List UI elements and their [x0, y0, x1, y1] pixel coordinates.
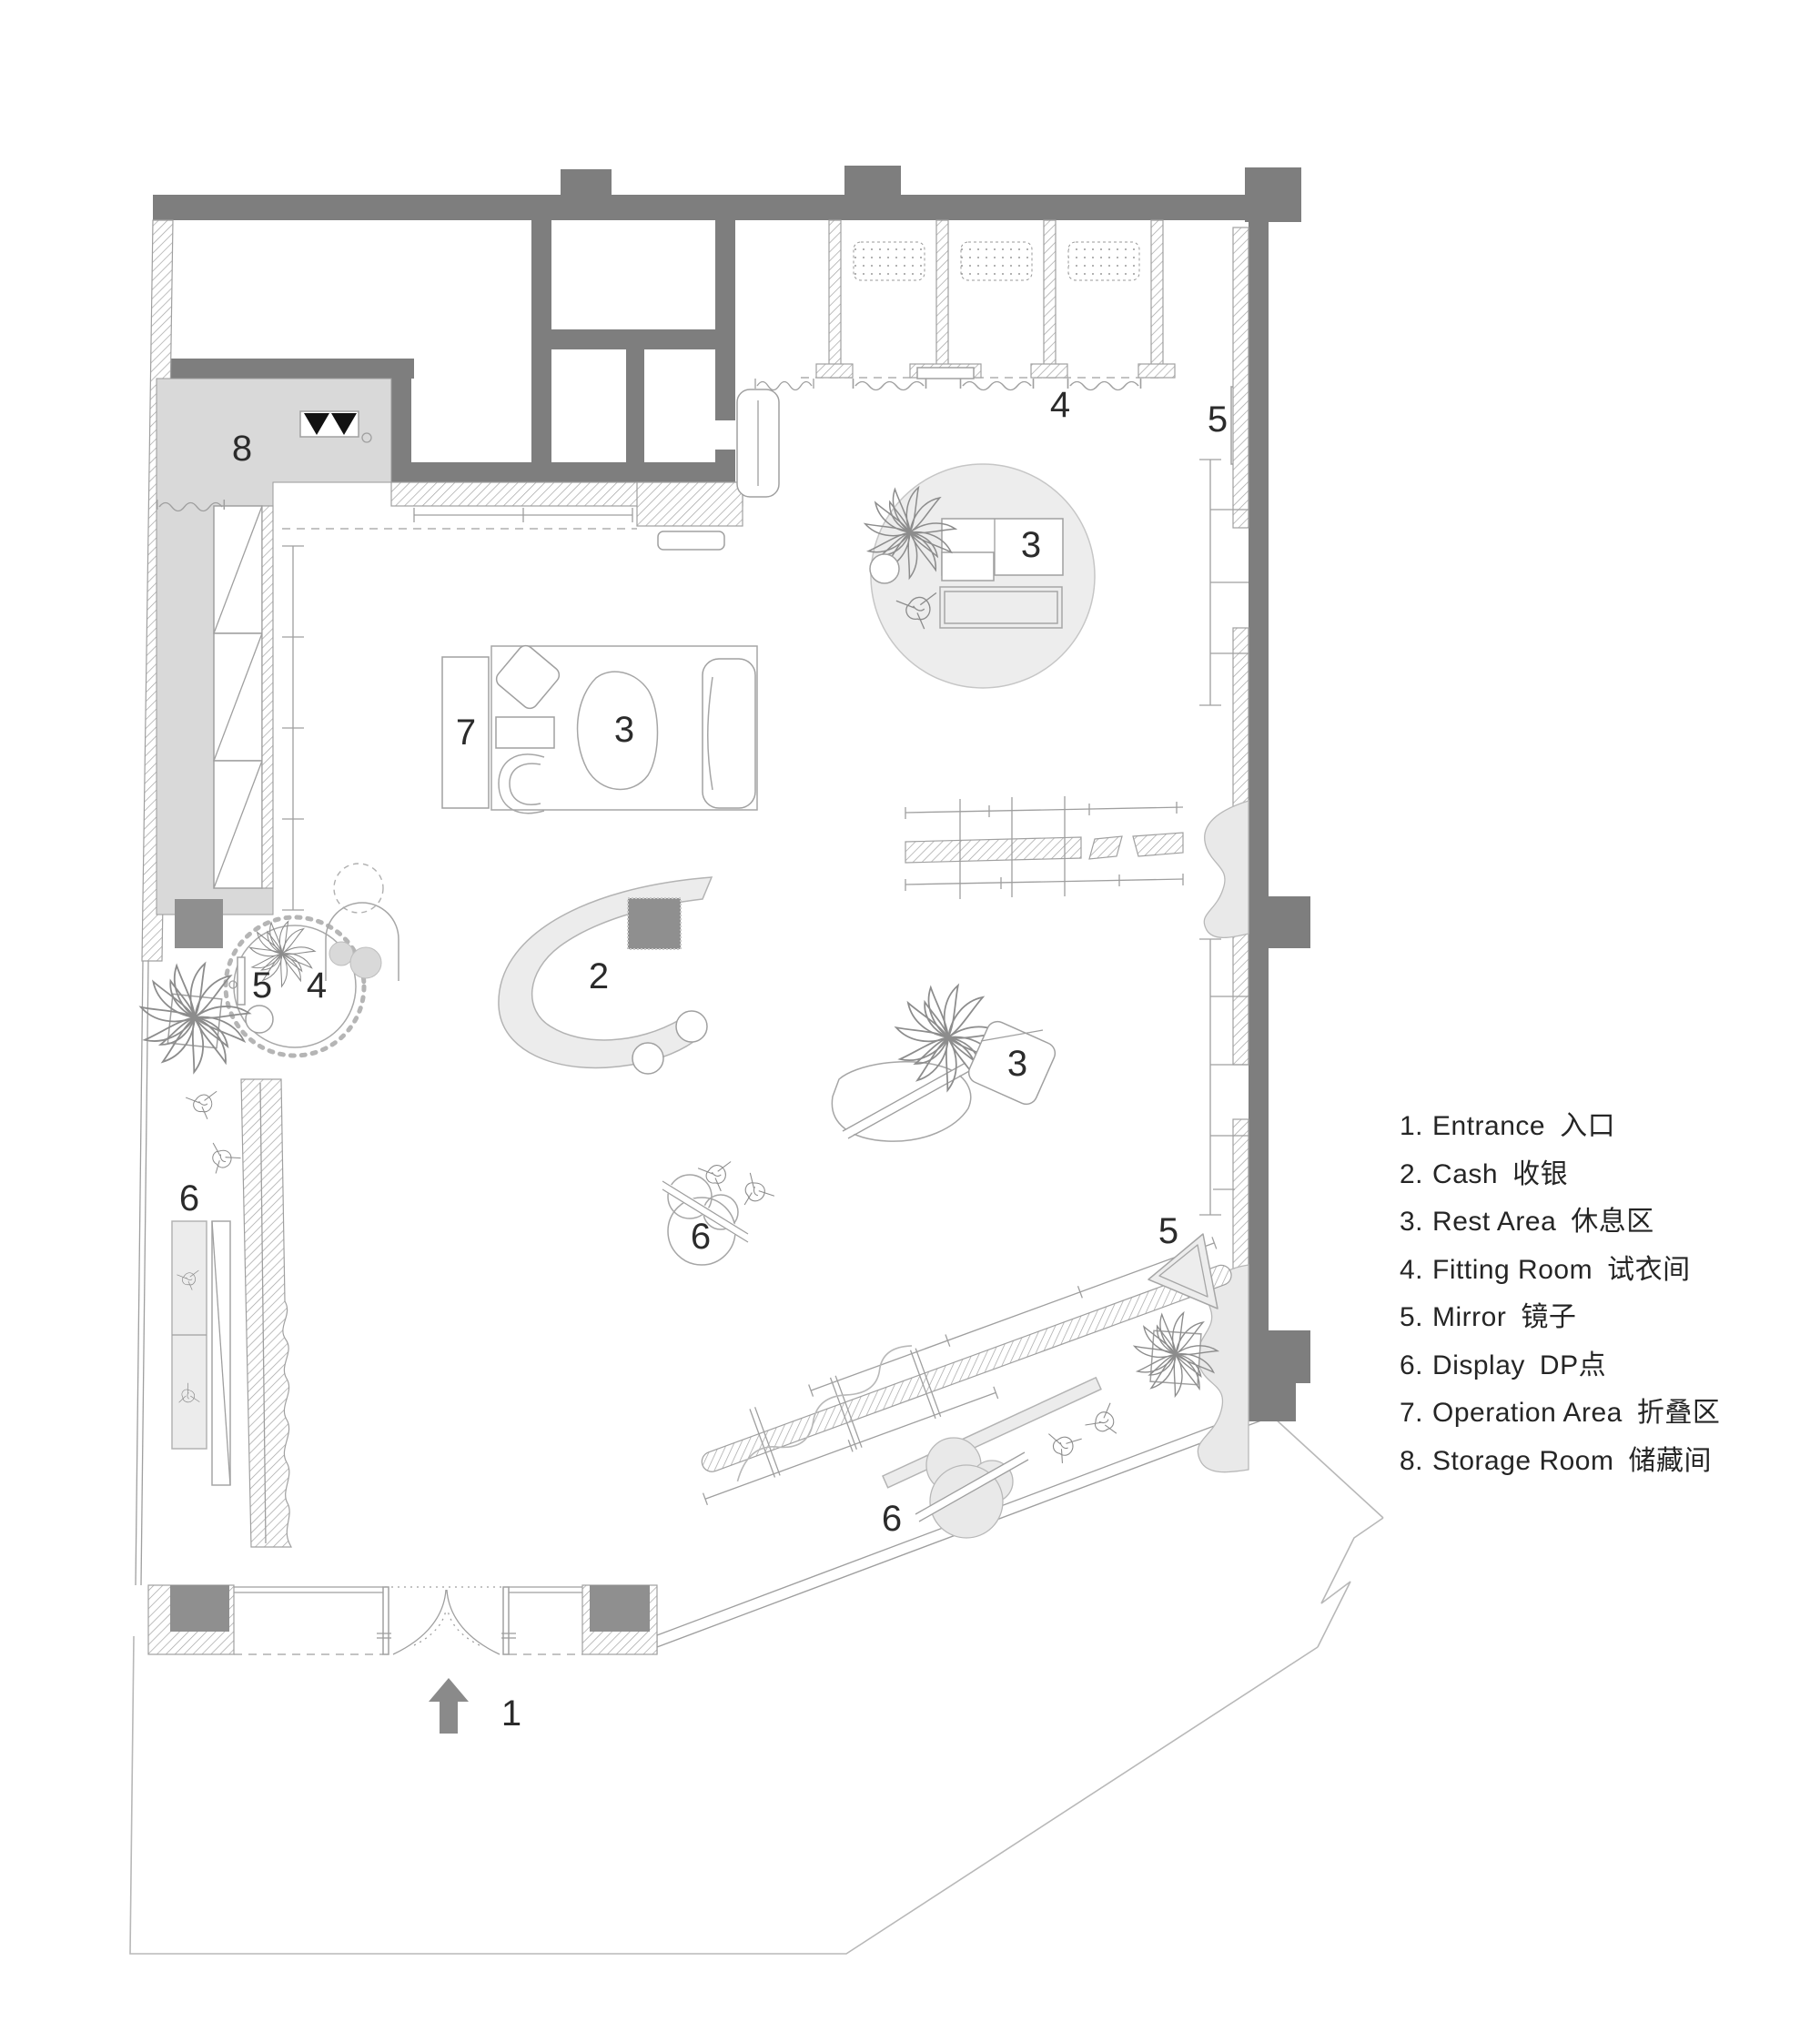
display-wall-band [241, 1079, 291, 1547]
rest-area-blob: 3 [832, 984, 1058, 1141]
mirror-round [238, 957, 245, 1005]
operation-rest-area: 7 3 [442, 642, 757, 814]
legend: 1.Entrance入口 2.Cash收银 3.Rest Area休息区 4.F… [1400, 1103, 1720, 1485]
wall-blob-upper [1204, 801, 1249, 937]
storage-cabinets [214, 506, 273, 888]
label-display-left: 6 [179, 1178, 199, 1218]
storefront: 1 [148, 1585, 657, 1734]
sprig-icon [698, 1162, 731, 1191]
stool [632, 1043, 663, 1074]
right-wall [1249, 195, 1269, 1420]
stool [246, 1006, 273, 1033]
fitting-rooms: 4 [737, 220, 1175, 497]
column-entrance-left [170, 1585, 229, 1632]
label-mirror-top: 5 [1208, 399, 1228, 440]
legend-item-display: 6.DisplayDP点 [1400, 1342, 1720, 1390]
entrance-arrow-icon [429, 1678, 469, 1734]
cash-column [628, 898, 681, 949]
storage-clothes-rail [282, 546, 304, 910]
sprig-icon [732, 1169, 774, 1213]
storage-wall-top [168, 359, 414, 379]
rest-area-circle: 3 [864, 464, 1095, 688]
column-top-1 [561, 169, 612, 195]
label-entrance: 1 [501, 1693, 521, 1734]
entrance-double-door [377, 1587, 516, 1654]
display-left: 6 [172, 1079, 291, 1547]
arch-display [326, 864, 399, 981]
label-cash: 2 [589, 956, 609, 996]
column-right-2 [1269, 1330, 1310, 1383]
label-fitting-round: 4 [307, 966, 327, 1006]
fitting-bench-mat [1068, 242, 1139, 280]
storage-wall-right [391, 379, 411, 482]
label-fitting-room-top: 4 [1050, 385, 1070, 425]
legend-item-operation-area: 7.Operation Area折叠区 [1400, 1390, 1720, 1438]
column-left-bottom [175, 899, 223, 948]
storage-room: 8 [157, 379, 391, 948]
cash-area: 2 [499, 877, 712, 1074]
legend-item-entrance: 1.Entrance入口 [1400, 1103, 1720, 1151]
boh-wall-v3 [626, 349, 644, 462]
label-display-bottom: 6 [882, 1499, 902, 1539]
sidewalk-outline [130, 1418, 1383, 1954]
fitting-bench-mat [961, 242, 1032, 280]
stool [676, 1011, 707, 1042]
display-center: 6 [662, 1162, 774, 1266]
sprig-icon [199, 1138, 241, 1179]
display-rail-horizontal [905, 796, 1183, 899]
round-fitting-room: 5 4 [139, 917, 364, 1073]
legend-item-rest-area: 3.Rest Area休息区 [1400, 1198, 1720, 1247]
label-rest-area-mid: 3 [614, 710, 634, 750]
column-right-1 [1269, 896, 1310, 948]
legend-item-mirror: 5.Mirror镜子 [1400, 1294, 1720, 1342]
floor-plan-svg: 8 4 5 [0, 0, 1820, 2022]
label-rest-area-blob: 3 [1007, 1044, 1027, 1084]
label-storage-room: 8 [232, 429, 252, 469]
legend-item-cash: 2.Cash收银 [1400, 1151, 1720, 1199]
floorplan-page: { "legend": { "items": [ {"num":"1.","en… [0, 0, 1820, 2022]
boh-wall-h2 [551, 329, 715, 349]
label-mirror-round: 5 [252, 966, 272, 1006]
fitting-bench-mat [854, 242, 925, 280]
column-entrance-right [590, 1585, 650, 1632]
sofa [703, 659, 755, 808]
boh-wall-v4a [715, 220, 735, 420]
stool-diamond [493, 642, 562, 712]
boh-wall-v2 [531, 220, 551, 462]
column-top-2 [844, 166, 901, 195]
boh-wall-bottom [391, 462, 735, 482]
legend-item-storage-room: 8.Storage Room储藏间 [1400, 1438, 1720, 1486]
legend-item-fitting-room: 4.Fitting Room试衣间 [1400, 1247, 1720, 1295]
sprig-icon [1041, 1428, 1082, 1467]
label-mirror-triangle: 5 [1158, 1211, 1178, 1251]
sprig-icon [186, 1091, 217, 1119]
label-display-center: 6 [691, 1217, 711, 1257]
sprig-icon [1082, 1403, 1125, 1445]
label-operation-area: 7 [456, 713, 476, 753]
label-rest-area-circle: 3 [1021, 525, 1041, 565]
